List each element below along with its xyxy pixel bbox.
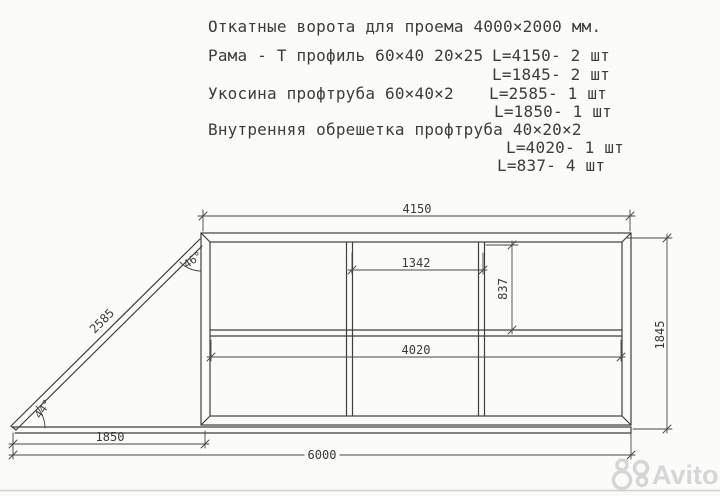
angle-arcs xyxy=(36,262,201,428)
dim-lattice-width: 4020 xyxy=(402,343,431,357)
dimension-lines xyxy=(9,210,672,459)
watermark-text: Avito xyxy=(652,460,719,490)
dim-frame-height: 1845 xyxy=(653,321,667,350)
dim-lattice-top: 1342 xyxy=(402,256,431,270)
dim-counterweight-base: 1850 xyxy=(96,430,125,444)
dim-frame-width: 4150 xyxy=(403,202,432,216)
dim-lattice-height: 837 xyxy=(496,278,510,300)
avito-watermark: Avito xyxy=(614,460,719,490)
gate-drawing: Avito xyxy=(0,0,720,496)
avito-logo-icon xyxy=(614,460,648,489)
blueprint-page: Откатные ворота для проема 4000×2000 мм.… xyxy=(0,0,720,496)
dim-total-length: 6000 xyxy=(305,448,340,462)
